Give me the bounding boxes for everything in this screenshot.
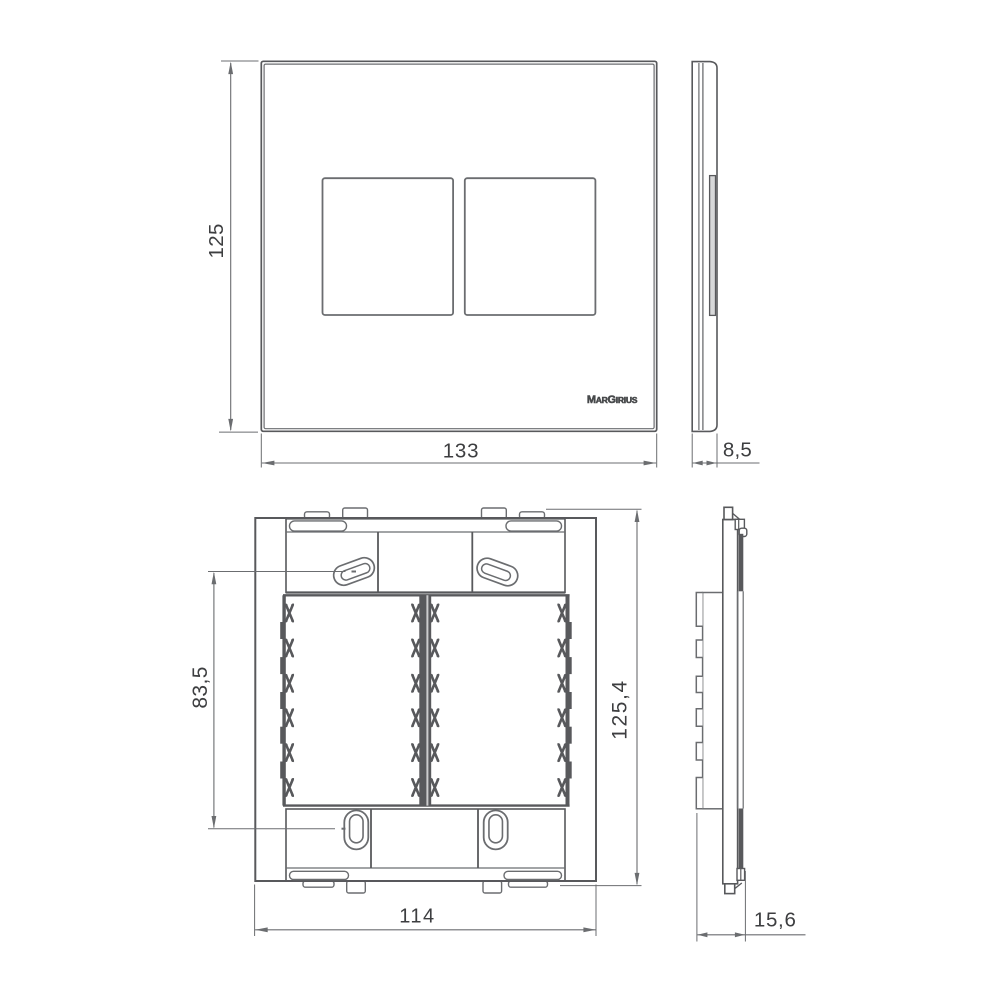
svg-text:114: 114 [399,905,435,927]
svg-text:15,6: 15,6 [754,909,797,932]
svg-text:MARGIRIUS: MARGIRIUS [587,394,638,406]
svg-text:125,4: 125,4 [609,679,632,740]
svg-text:83,5: 83,5 [189,666,212,708]
svg-text:8,5: 8,5 [723,438,752,461]
svg-text:133: 133 [443,440,480,463]
svg-text:125: 125 [205,223,228,258]
